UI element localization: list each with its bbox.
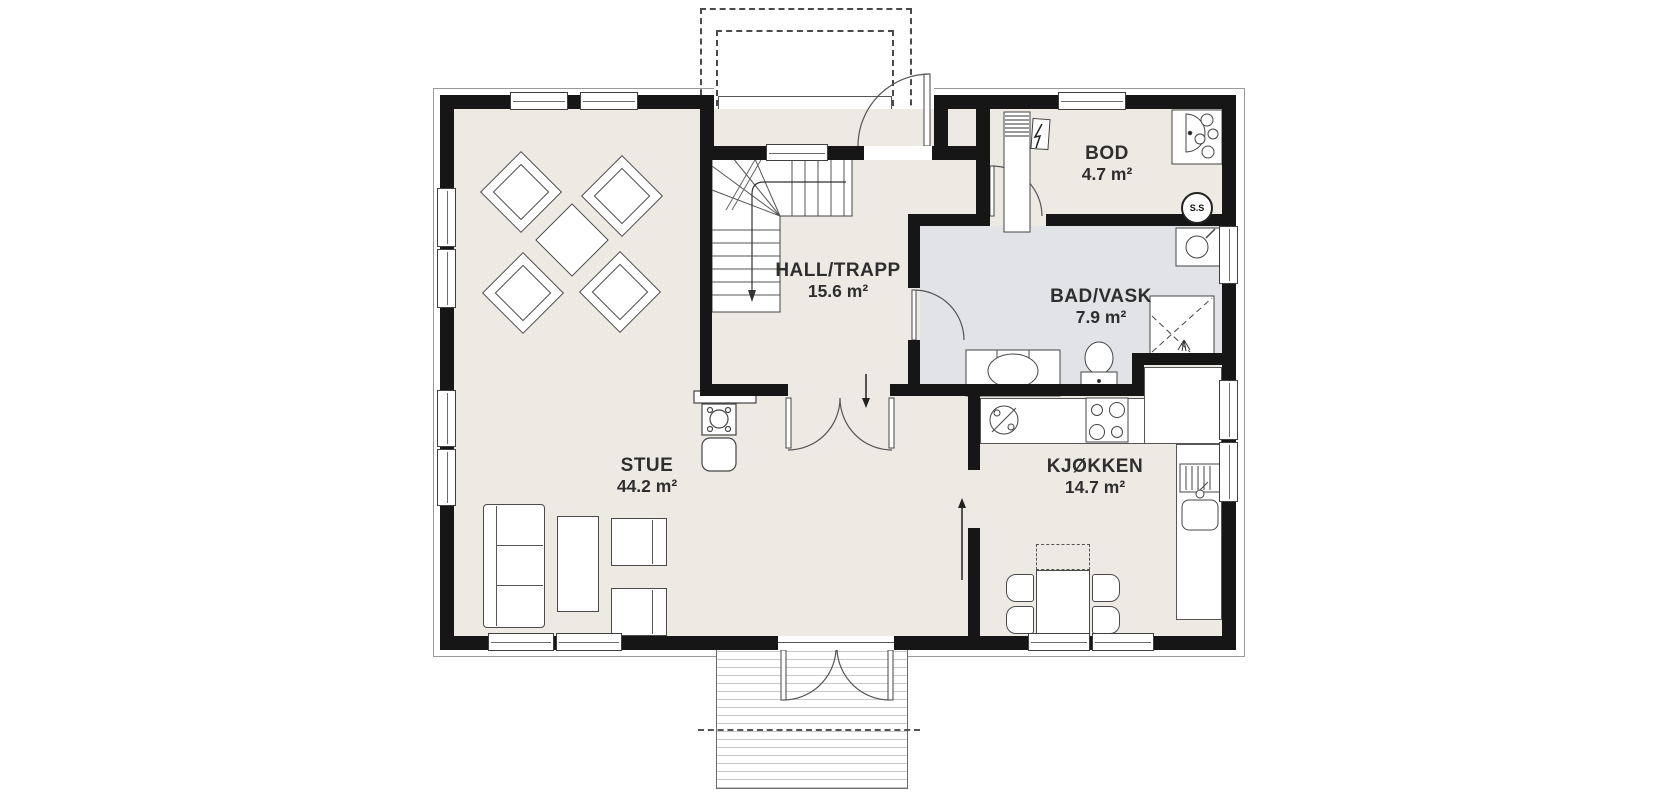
room-name: BAD/VASK xyxy=(1050,286,1152,307)
toilet-icon xyxy=(1081,342,1117,389)
terrace-door-opening xyxy=(778,636,894,650)
wall xyxy=(1222,95,1236,650)
down-arrow-icon xyxy=(862,374,870,408)
floor-plan: STUE 44.2 m² HALL/TRAPP 15.6 m² BOD 4.7 … xyxy=(0,0,1670,800)
window xyxy=(1092,633,1154,651)
entry-door-icon xyxy=(858,74,930,146)
electrical-panel-icon xyxy=(1031,118,1050,149)
fireplace-icon xyxy=(694,391,756,471)
entry-door-opening xyxy=(864,146,932,160)
shower-icon xyxy=(1150,296,1214,354)
up-arrow-icon xyxy=(958,498,966,580)
cooktop-icon xyxy=(1086,398,1128,442)
room-label-bod: BOD 4.7 m² xyxy=(1082,143,1133,185)
wall xyxy=(976,109,990,226)
window xyxy=(1058,92,1126,110)
interior-double-door-icon xyxy=(786,398,894,450)
bathroom-door-icon xyxy=(912,290,964,340)
room-area: 14.7 m² xyxy=(1047,477,1143,498)
room-area: 15.6 m² xyxy=(775,281,900,302)
terrace-double-door-icon xyxy=(781,650,893,700)
window xyxy=(437,449,456,506)
window xyxy=(766,144,828,161)
window xyxy=(437,390,456,447)
wall xyxy=(1132,353,1236,365)
wall xyxy=(968,528,980,636)
room-name: BOD xyxy=(1082,143,1133,164)
kitchen-sink-icon xyxy=(1180,464,1220,530)
room-area: 4.7 m² xyxy=(1082,164,1133,185)
fixtures-layer xyxy=(0,0,1670,800)
wall xyxy=(440,95,714,109)
room-name: HALL/TRAPP xyxy=(775,260,900,281)
window xyxy=(1219,380,1238,440)
ss-badge: S.S xyxy=(1181,192,1213,224)
wall xyxy=(968,396,980,470)
window xyxy=(580,92,638,110)
dishwasher-icon xyxy=(990,406,1018,434)
room-label-hall: HALL/TRAPP 15.6 m² xyxy=(775,260,900,302)
room-label-stue: STUE 44.2 m² xyxy=(617,455,677,497)
wall xyxy=(700,109,712,396)
water-heater-icon xyxy=(1172,110,1222,164)
wall xyxy=(700,384,788,396)
laundry-sink-icon xyxy=(1176,228,1222,266)
window xyxy=(1219,226,1238,284)
window xyxy=(437,188,456,247)
window xyxy=(437,249,456,308)
terrace-door-sill xyxy=(778,642,894,643)
room-label-bad: BAD/VASK 7.9 m² xyxy=(1050,286,1152,328)
wall xyxy=(908,384,1132,396)
ventilation-duct-icon xyxy=(1004,112,1030,232)
wall xyxy=(908,226,920,288)
window xyxy=(510,92,568,110)
room-area: 7.9 m² xyxy=(1050,307,1152,328)
window xyxy=(1219,442,1238,502)
window xyxy=(488,633,554,651)
wall xyxy=(440,95,454,650)
window xyxy=(556,633,622,651)
room-label-kjokken: KJØKKEN 14.7 m² xyxy=(1047,456,1143,498)
room-area: 44.2 m² xyxy=(617,476,677,497)
room-name: KJØKKEN xyxy=(1047,456,1143,477)
window xyxy=(1028,633,1090,651)
room-name: STUE xyxy=(617,455,677,476)
